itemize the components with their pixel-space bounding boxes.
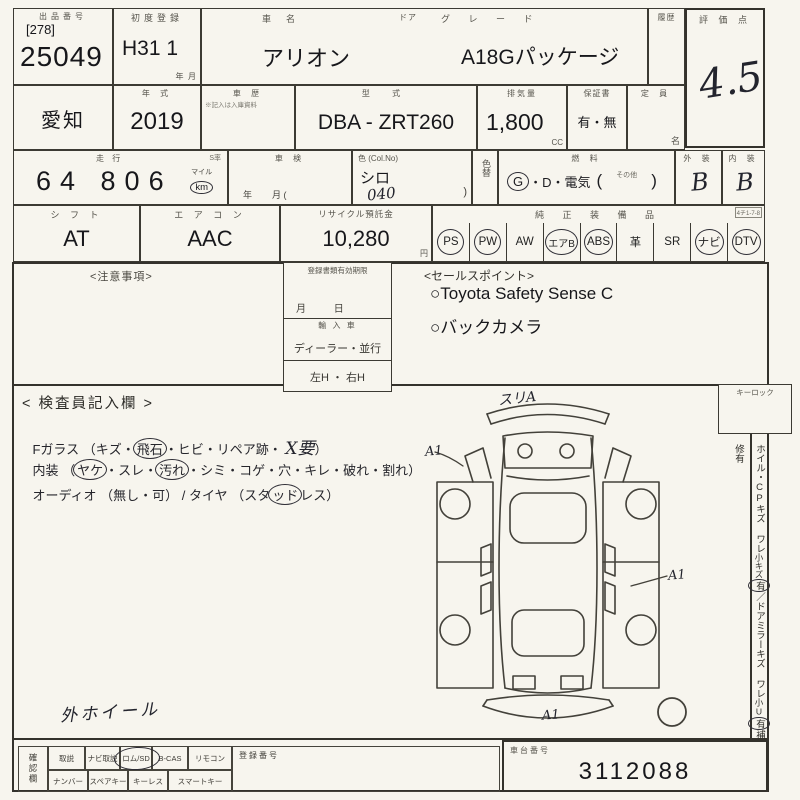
- confirm-column-cell: 確認欄: [18, 746, 48, 792]
- lot-bracket: [278]: [26, 22, 55, 37]
- first-registration-cell: 初度登録 H31 1 年 月: [113, 8, 201, 85]
- aircon-value: AAC: [141, 226, 279, 252]
- mark-a1-left: A1: [424, 443, 443, 459]
- warranty-cell: 保証書 有・無: [567, 85, 627, 150]
- tire-circled-stud: ッド: [268, 484, 302, 505]
- check-manual-label: 取説: [59, 753, 74, 764]
- car-name-label: 車 名: [262, 12, 298, 25]
- aircon-cell: エ ア コ ン AAC: [140, 205, 280, 262]
- first-registration-label: 初度登録: [114, 11, 200, 24]
- aircon-label: エ ア コ ン: [141, 208, 279, 221]
- capacity-unit: 名: [671, 134, 680, 147]
- equip-label: ABS: [587, 236, 610, 248]
- color-change-label: 色替: [480, 159, 493, 177]
- capacity-cell: 定 員 名: [627, 85, 685, 150]
- prefecture-value: 愛知: [14, 104, 112, 133]
- prefecture-cell: 愛知: [13, 85, 113, 150]
- equip-item-abs: ABS: [580, 223, 617, 261]
- exterior-label: 外 装: [676, 153, 721, 164]
- equip-item-leather: 革: [616, 223, 653, 261]
- margin-note-small-dent-yes: 有: [748, 717, 770, 731]
- equip-item-sr: SR: [653, 223, 690, 261]
- stamp-circle: [658, 698, 686, 726]
- displacement-unit: CC: [551, 138, 563, 147]
- color-change-cell: 色替: [472, 150, 498, 205]
- cowl-circle-right: [560, 444, 574, 458]
- warranty-value: 有・無: [568, 112, 626, 131]
- color-paren: ): [463, 186, 467, 198]
- fuel-options: G ・D・電気 ( その他 ): [507, 171, 657, 191]
- equipment-form-code: 4チ1-7-8: [735, 207, 762, 218]
- shaken-label: 車 検: [229, 153, 351, 164]
- exterior-cell: 外 装 B: [675, 150, 722, 205]
- auction-sheet: 出品番号 [278] 25049 初度登録 H31 1 年 月 車 名 アリオン…: [0, 0, 800, 800]
- recycle-value: 10,280: [281, 226, 431, 252]
- model-year-cell: 年 式 2019: [113, 85, 201, 150]
- left-rear-wheel: [440, 615, 470, 645]
- mileage-value: 64 806: [36, 166, 173, 197]
- mileage-cell: 走 行 S率 64 806 マイル km: [13, 150, 228, 205]
- color-label: 色 (Col.No): [358, 153, 398, 164]
- cowl-panel: [503, 432, 593, 468]
- mileage-unit-km: km: [190, 181, 213, 194]
- shift-value: AT: [14, 226, 139, 252]
- front-bumper-inner: [491, 415, 605, 425]
- equip-label: 革: [630, 234, 642, 250]
- mileage-s-label: S率: [209, 153, 221, 163]
- equip-label: エアB: [548, 235, 575, 250]
- equip-circle: 革: [622, 229, 649, 255]
- right-rear-wheel: [626, 615, 656, 645]
- color-code: 040: [366, 184, 396, 205]
- import-label: 輸 入 車: [284, 320, 391, 331]
- equip-label: AW: [516, 236, 534, 248]
- rear-bumper-ends: [483, 700, 613, 706]
- docs-expiry-unit: 月 日: [296, 300, 344, 315]
- mileage-label: 走 行: [96, 153, 123, 164]
- equip-label: PW: [479, 236, 498, 248]
- equip-label: ナビ: [698, 234, 721, 250]
- warranty-label: 保証書: [568, 88, 626, 99]
- body-side-left: [499, 438, 505, 688]
- equip-circle: PW: [474, 229, 501, 255]
- check-keyless-cell: キーレス: [128, 770, 168, 792]
- score-cell: 評 価 点 4.5: [685, 8, 765, 148]
- right-front-wheel: [626, 489, 656, 519]
- recycle-unit: 円: [420, 248, 428, 259]
- equip-item-airb: エアB: [543, 223, 580, 261]
- right-mirror: [605, 448, 631, 482]
- check-plate-label: ナンバー: [53, 776, 83, 787]
- equip-circle: エアB: [545, 229, 578, 255]
- import-cell: 輸 入 車 ディーラー・並行: [284, 318, 391, 361]
- car-history-note: ※記入は入庫資料: [205, 99, 257, 109]
- body-side-right: [591, 438, 597, 688]
- trunk-left-detail: [513, 676, 535, 689]
- car-history-label: 車 歴: [202, 88, 294, 99]
- mileage-unit-block: マイル km: [190, 167, 213, 195]
- audio-text-2: レス）: [300, 488, 339, 503]
- equip-circle: ナビ: [695, 229, 724, 255]
- equipment-label: 純 正 装 備 品: [433, 208, 764, 221]
- check-spare-key-cell: スペアキー: [88, 770, 128, 792]
- mark-a1-rear: A1: [541, 707, 560, 723]
- equip-label: SR: [664, 236, 680, 248]
- audio-text-1: オーディオ （無し・可） / タイヤ （スタ: [32, 488, 270, 503]
- model-year-label: 年 式: [114, 88, 200, 99]
- grade-cell: グ レ ー ド A18Gパッケージ: [427, 8, 648, 85]
- handle-value: 左H ・ 右H: [284, 369, 391, 385]
- check-plate-cell: ナンバー: [48, 770, 88, 792]
- equipment-cell: 純 正 装 備 品 4チ1-7-8 PS PW AW エアB ABS 革 SR …: [432, 205, 765, 262]
- chassis-number-value: 3112088: [504, 758, 766, 786]
- left-rear-window: [481, 582, 491, 614]
- fuel-label: 燃 料: [499, 153, 674, 164]
- recycle-cell: リサイクル預託金 10,280 円: [280, 205, 432, 262]
- recycle-label: リサイクル預託金: [281, 208, 431, 220]
- equip-label: DTV: [735, 236, 758, 248]
- first-registration-unit: 年 月: [176, 71, 196, 82]
- check-bcas-label: B-CAS: [159, 754, 182, 763]
- displacement-value: 1,800: [486, 109, 544, 136]
- check-manual-cell: 取説: [48, 746, 85, 770]
- fuel-option-rest: ・D・電気: [529, 172, 590, 191]
- docs-box: 登録書類有効期限 月 日 輸 入 車 ディーラー・並行 左H ・ 右H: [283, 262, 392, 392]
- sales-point-2: ○バックカメラ: [430, 313, 542, 338]
- exterior-grade: B: [690, 167, 710, 196]
- equip-circle: DTV: [732, 229, 761, 255]
- margin-note-small-scratch: 小キズ: [754, 553, 764, 579]
- model-code-value: DBA - ZRT260: [296, 111, 476, 135]
- left-front-wheel: [440, 489, 470, 519]
- model-code-label: 型 式: [296, 88, 476, 99]
- equip-item-aw: AW: [506, 223, 543, 261]
- rear-bumper-inner: [487, 695, 609, 700]
- history-label: 履歴: [649, 12, 684, 23]
- sales-point-1: ○Toyota Safety Sense C: [430, 284, 613, 304]
- car-history-cell: 車 歴 ※記入は入庫資料: [201, 85, 295, 150]
- chassis-number-label: 車台番号: [510, 745, 550, 756]
- equip-item-navi: ナビ: [690, 223, 727, 261]
- shift-label: シ フ ト: [14, 208, 139, 221]
- interior-cell: 内 装 B: [722, 150, 765, 205]
- equip-circle: PS: [437, 229, 464, 255]
- left-front-window: [481, 544, 491, 576]
- fuel-paren-close: ): [651, 171, 657, 191]
- fuel-other-label: その他: [616, 170, 637, 180]
- check-smart-key-label: スマートキー: [178, 776, 223, 787]
- mark-a1-right: A1: [667, 567, 686, 583]
- check-spare-key-label: スペアキー: [90, 776, 127, 787]
- capacity-label: 定 員: [628, 88, 684, 99]
- shaken-cell: 車 検 年 月 (: [228, 150, 352, 205]
- score-label: 評 価 点: [687, 13, 763, 26]
- equip-item-dtv: DTV: [727, 223, 764, 261]
- check-remote-cell: リモコン: [188, 746, 232, 770]
- cowl-circle-left: [518, 444, 532, 458]
- equipment-row: PS PW AW エアB ABS 革 SR ナビ DTV: [433, 223, 764, 261]
- displacement-label: 排気量: [478, 88, 566, 99]
- lot-number: 25049: [20, 41, 103, 73]
- registration-number-label: 登録番号: [239, 750, 279, 761]
- margin-note-mirror: ／ドアミラーキズ ワレ: [754, 592, 765, 698]
- margin-damage-notes: ホイル・CPキズ ワレ小キズ有／ドアミラーキズ ワレ小U有補修有: [726, 444, 770, 744]
- mark-scratch-front: スリA: [497, 386, 537, 410]
- fuel-option-gasoline: G: [507, 172, 529, 191]
- grade-value: A18Gパッケージ: [461, 41, 619, 71]
- history-cell: 履歴: [648, 8, 685, 85]
- interior-grade: B: [735, 167, 755, 196]
- equip-item-pw: PW: [469, 223, 506, 261]
- equip-circle: AW: [511, 229, 538, 255]
- notes-label: <注意事項>: [90, 268, 153, 284]
- margin-note-small-scratch-yes: 有: [748, 579, 770, 593]
- keylock-box: キーロック: [718, 384, 792, 434]
- car-diagram: [425, 390, 715, 738]
- first-registration-value: H31 1: [122, 37, 178, 61]
- lot-number-label: 出品番号: [14, 11, 112, 22]
- mileage-unit-mile: マイル: [190, 167, 213, 177]
- docs-expiry-label: 登録書類有効期限: [284, 265, 391, 276]
- door-cell: ドア: [389, 8, 427, 85]
- car-name-value: アリオン: [262, 41, 350, 73]
- check-keyless-label: キーレス: [133, 776, 163, 787]
- car-name-cell: 車 名 アリオン: [201, 8, 389, 85]
- a1-right-leader: [631, 576, 667, 586]
- docs-expiry-cell: 登録書類有効期限 月 日: [284, 263, 391, 319]
- fuel-cell: 燃 料 G ・D・電気 ( その他 ): [498, 150, 675, 205]
- displacement-cell: 排気量 1,800 CC: [477, 85, 567, 150]
- audio-tire-line: オーディオ （無し・可） / タイヤ （スタッドレス）: [18, 469, 339, 520]
- model-year-value: 2019: [114, 108, 200, 136]
- left-mirror: [465, 448, 491, 482]
- fuel-paren-open: (: [597, 171, 603, 191]
- keylock-label: キーロック: [719, 387, 791, 398]
- inspector-section-title: < 検査員記入欄 >: [22, 392, 154, 413]
- interior-label: 内 装: [723, 153, 764, 164]
- right-front-window: [605, 544, 615, 576]
- model-code-cell: 型 式 DBA - ZRT260: [295, 85, 477, 150]
- margin-note-small-dent: 小U: [754, 698, 764, 717]
- trunk-right-detail: [561, 676, 583, 689]
- equip-circle: ABS: [584, 229, 613, 255]
- confirm-column-label: 確認欄: [27, 753, 39, 785]
- color-cell: 色 (Col.No) シロ 040 ): [352, 150, 472, 205]
- chassis-number-cell: 車台番号 3112088: [502, 740, 768, 792]
- rear-glass: [512, 610, 584, 656]
- import-value: ディーラー・並行: [284, 340, 391, 356]
- check-smart-key-cell: スマートキー: [168, 770, 232, 792]
- door-label: ドア: [389, 12, 427, 23]
- score-value: 4.5: [696, 53, 766, 108]
- lot-number-cell: 出品番号 [278] 25049: [13, 8, 113, 85]
- grade-label: グ レ ー ド: [441, 12, 541, 25]
- shift-cell: シ フ ト AT: [13, 205, 140, 262]
- check-remote-label: リモコン: [195, 753, 225, 764]
- equip-item-ps: PS: [433, 223, 469, 261]
- handle-cell: 左H ・ 右H: [284, 360, 391, 391]
- right-rear-window: [605, 582, 615, 614]
- shaken-unit: 年 月 (: [243, 188, 287, 201]
- hood-line: [507, 476, 589, 480]
- equip-label: PS: [443, 236, 458, 248]
- margin-note-wheel: ホイル・CPキズ ワレ: [754, 444, 765, 553]
- sales-points-label: <セールスポイント>: [424, 267, 534, 284]
- equip-circle: SR: [659, 229, 686, 255]
- windshield-glass: [510, 493, 586, 543]
- registration-number-cell: 登録番号: [232, 746, 500, 792]
